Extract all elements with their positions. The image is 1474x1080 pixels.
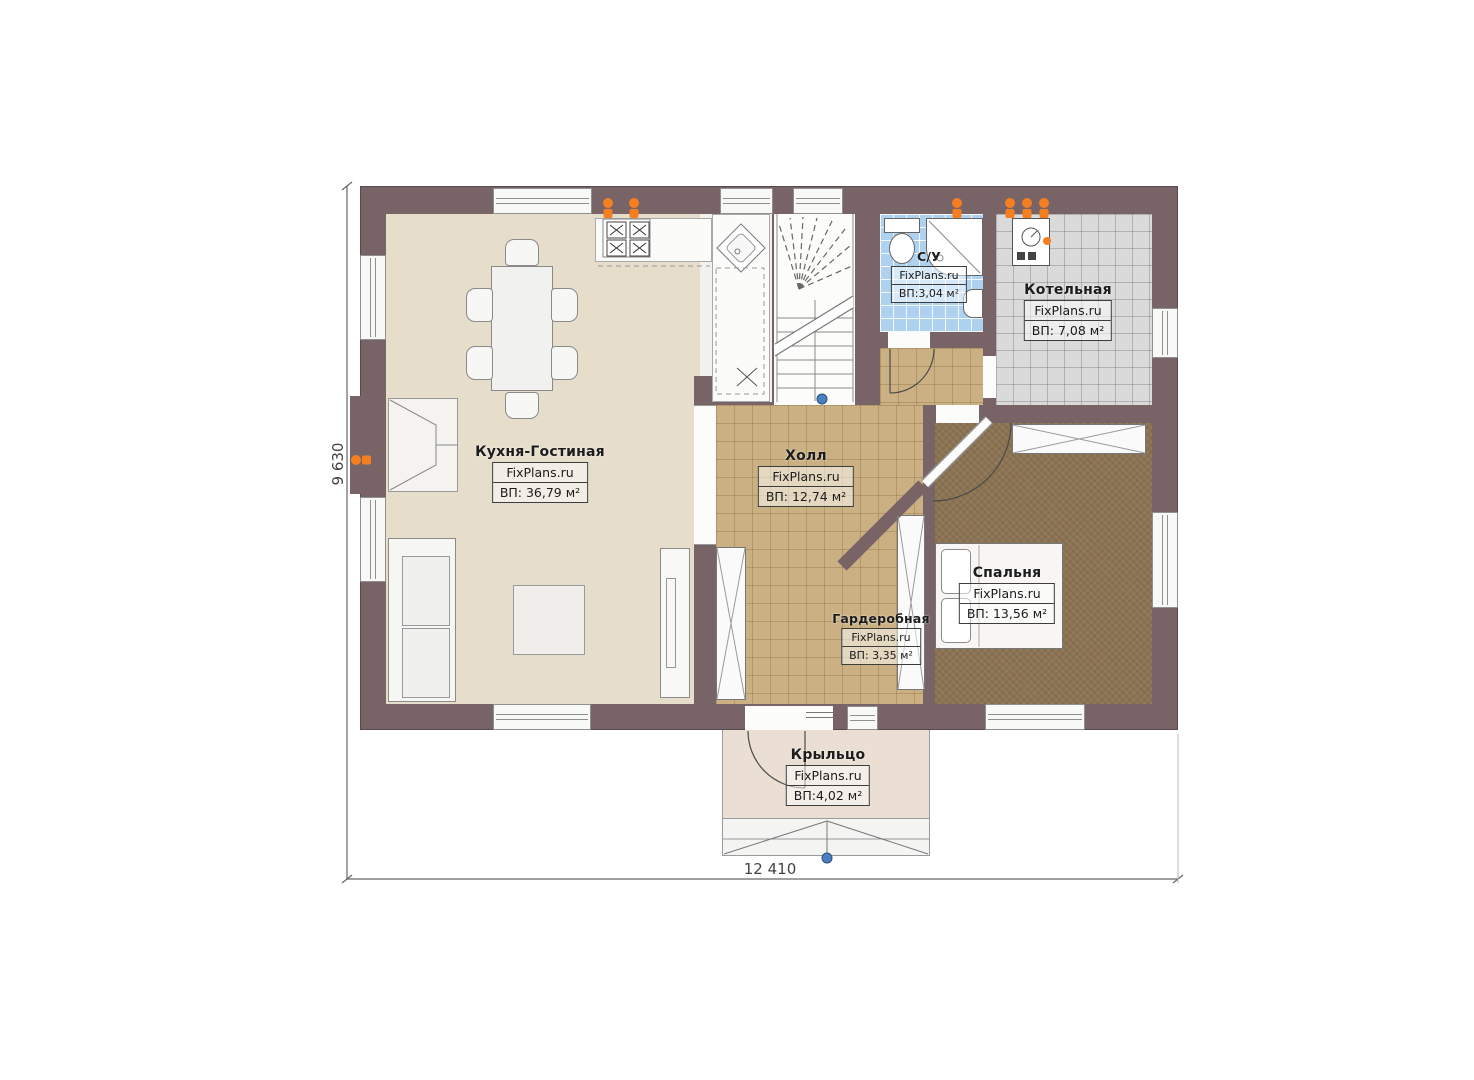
entrance-sidelight [806,712,833,718]
room-name: Спальня [959,565,1055,581]
room-brand: FixPlans.ru [493,463,587,482]
room-info-box: FixPlans.ru ВП: 12,74 м² [758,466,854,507]
room-area: ВП:3,04 м² [892,284,966,302]
room-label-boiler: Котельная FixPlans.ru ВП: 7,08 м² [1024,282,1112,341]
room-label-hall: Холл FixPlans.ru ВП: 12,74 м² [758,448,854,507]
room-info-box: FixPlans.ru ВП: 3,35 м² [841,628,921,665]
window-left-1 [360,255,386,340]
room-info-box: FixPlans.ru ВП: 7,08 м² [1024,300,1112,341]
window-top-stair [793,188,843,214]
room-area: ВП: 13,56 м² [960,603,1054,623]
room-name: Котельная [1024,282,1112,298]
room-label-bathroom: С/У FixPlans.ru ВП:3,04 м² [891,249,967,303]
room-info-box: FixPlans.ru ВП: 36,79 м² [492,462,588,503]
dining-table [491,266,553,391]
room-name: С/У [891,249,967,264]
bedroom-doorway [936,405,979,423]
room-name: Гардеробная [832,611,929,626]
room-area: ВП: 7,08 м² [1025,320,1111,340]
tv [666,578,676,668]
window-bottom-bedroom [985,704,1085,730]
room-info-box: FixPlans.ru ВП: 13,56 м² [959,583,1055,624]
room-brand: FixPlans.ru [960,584,1054,603]
window-bottom-hall [847,706,878,730]
bathroom-doorway [888,332,930,348]
bedroom-closet [1012,424,1146,454]
room-name: Кухня-Гостиная [475,444,605,460]
room-name: Холл [758,448,854,464]
boiler-unit [1012,218,1050,266]
window-right-boiler [1152,308,1178,358]
chair [551,288,578,322]
room-name: Крыльцо [786,747,870,763]
toilet-tank [884,218,920,233]
chair [466,346,493,380]
room-brand: FixPlans.ru [1025,301,1111,320]
dimension-width: 12 410 [744,860,797,878]
room-brand: FixPlans.ru [892,267,966,284]
room-label-kitchen: Кухня-Гостиная FixPlans.ru ВП: 36,79 м² [475,444,605,503]
window-left-2 [360,497,386,582]
hall-upper-floor [880,348,983,405]
sofa-cushion [402,556,450,626]
staircase-zone [774,214,855,405]
room-brand: FixPlans.ru [842,629,920,646]
hall-closet-left [716,547,746,700]
chair [551,346,578,380]
room-area: ВП:4,02 м² [787,785,869,805]
room-info-box: FixPlans.ru ВП:3,04 м² [891,266,967,303]
wall-kitchen-hall [694,545,716,704]
boiler-doorway [983,356,996,398]
room-brand: FixPlans.ru [759,467,853,486]
wall-stair-bathroom [855,214,880,405]
entrance-doorway [745,706,833,730]
room-area: ВП: 12,74 м² [759,486,853,506]
kitchen-counter-right [712,214,770,402]
sofa-cushion [402,628,450,698]
room-label-porch: Крыльцо FixPlans.ru ВП:4,02 м² [786,747,870,806]
chair [505,392,539,419]
room-area: ВП: 36,79 м² [493,482,587,502]
room-info-box: FixPlans.ru ВП:4,02 м² [786,765,870,806]
porch-steps [722,818,930,856]
dimension-height: 9 630 [329,443,347,486]
room-area: ВП: 3,35 м² [842,646,920,664]
room-brand: FixPlans.ru [787,766,869,785]
coffee-table [513,585,585,655]
floor-plan-canvas: Кухня-Гостиная FixPlans.ru ВП: 36,79 м² … [0,0,1474,1080]
opening-kitchen-hall [694,405,716,545]
room-label-wardrobe: Гардеробная FixPlans.ru ВП: 3,35 м² [832,611,929,665]
fireplace-wall-bump [350,396,386,494]
room-label-bedroom: Спальня FixPlans.ru ВП: 13,56 м² [959,565,1055,624]
window-top-sink [720,188,773,214]
window-bottom-kitchen [493,704,591,730]
wall-bathroom-boiler [983,214,996,348]
window-top-kitchen [493,188,592,214]
chair [505,239,539,266]
chair [466,288,493,322]
fireplace [388,398,458,492]
kitchen-counter-top [595,218,712,262]
window-right-bedroom [1152,512,1178,608]
